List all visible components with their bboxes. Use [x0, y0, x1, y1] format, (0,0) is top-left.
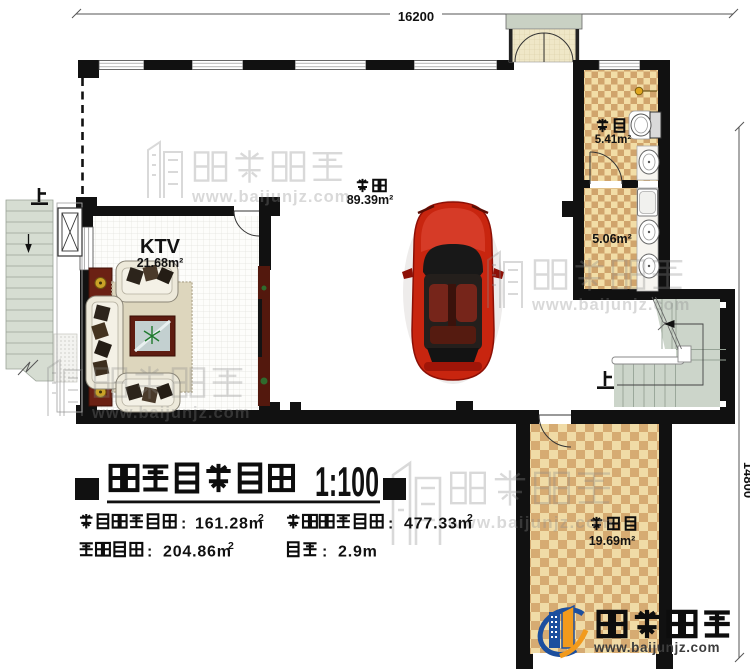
- svg-text:1:100: 1:100: [315, 458, 379, 505]
- svg-text::: :: [322, 544, 327, 561]
- svg-text:5.06m²: 5.06m²: [592, 232, 632, 246]
- svg-text:14800: 14800: [741, 462, 750, 498]
- svg-text:2: 2: [228, 540, 234, 552]
- svg-text:www.baijunjz.com: www.baijunjz.com: [531, 296, 690, 314]
- svg-text:2.9m: 2.9m: [338, 544, 378, 561]
- svg-text::: :: [147, 544, 152, 561]
- svg-text:2: 2: [467, 512, 473, 524]
- svg-text:161.28m: 161.28m: [195, 516, 264, 533]
- svg-text::: :: [388, 516, 393, 533]
- svg-text:KTV: KTV: [140, 236, 181, 258]
- svg-text:www.baijunjz.com: www.baijunjz.com: [191, 188, 350, 206]
- svg-text:2: 2: [258, 512, 264, 524]
- svg-text:www.baijunjz.com: www.baijunjz.com: [91, 404, 250, 422]
- svg-text:89.39m²: 89.39m²: [347, 193, 394, 207]
- svg-text:204.86m: 204.86m: [163, 544, 232, 561]
- svg-text:477.33m: 477.33m: [404, 516, 473, 533]
- svg-text:www.baijunjz.com: www.baijunjz.com: [593, 640, 720, 655]
- svg-text:19.69m²: 19.69m²: [589, 534, 636, 548]
- svg-text:16200: 16200: [398, 9, 434, 24]
- svg-text::: :: [181, 516, 186, 533]
- svg-text:21.68m²: 21.68m²: [137, 256, 184, 270]
- svg-text:5.41m²: 5.41m²: [595, 134, 632, 146]
